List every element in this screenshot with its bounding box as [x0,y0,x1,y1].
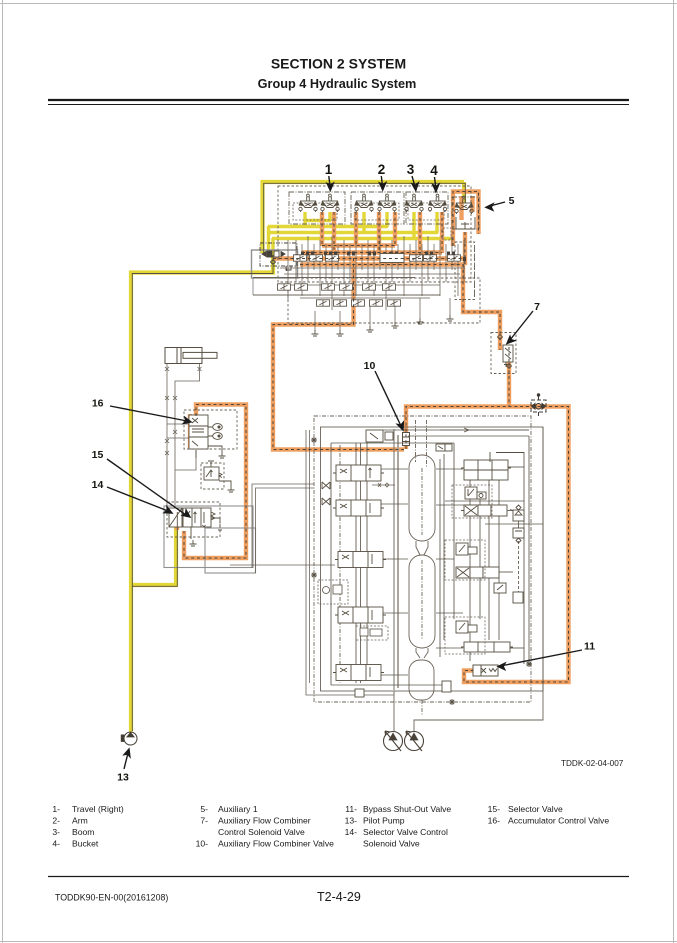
svg-text:Bypass Shut-Out Valve: Bypass Shut-Out Valve [363,804,451,814]
svg-text:Control Solenoid Valve: Control Solenoid Valve [218,827,305,837]
svg-text:10: 10 [364,360,376,372]
svg-text:Solenoid Valve: Solenoid Valve [363,839,420,849]
svg-text:3-: 3- [52,827,60,837]
svg-text:Selector Valve: Selector Valve [508,804,563,814]
svg-text:14-: 14- [345,827,358,837]
svg-text:T2-4-29: T2-4-29 [317,890,361,904]
svg-text:Travel (Right): Travel (Right) [72,804,124,814]
svg-text:Auxiliary 1: Auxiliary 1 [218,804,258,814]
svg-text:Group 4 Hydraulic System: Group 4 Hydraulic System [258,77,417,91]
svg-text:SECTION 2 SYSTEM: SECTION 2 SYSTEM [271,56,406,72]
svg-text:7: 7 [534,301,540,313]
svg-text:15-: 15- [488,804,501,814]
svg-text:15: 15 [92,449,104,461]
svg-text:3: 3 [407,162,415,177]
svg-text:Accumulator Control Valve: Accumulator Control Valve [508,816,609,826]
svg-text:10-: 10- [196,839,209,849]
svg-text:7-: 7- [200,816,208,826]
svg-text:5: 5 [509,195,515,207]
svg-text:Selector Valve Control: Selector Valve Control [363,827,448,837]
svg-text:4-: 4- [52,839,60,849]
svg-text:16: 16 [92,398,104,410]
svg-text:5-: 5- [200,804,208,814]
svg-text:Arm: Arm [72,816,88,826]
svg-text:Boom: Boom [72,827,94,837]
svg-text:11-: 11- [345,804,357,814]
svg-text:TDDK-02-04-007: TDDK-02-04-007 [561,759,624,768]
svg-text:11: 11 [584,641,595,653]
svg-text:16-: 16- [488,816,501,826]
svg-text:4: 4 [430,163,438,178]
svg-text:TODDK90-EN-00(20161208): TODDK90-EN-00(20161208) [55,893,168,903]
svg-text:Pilot Pump: Pilot Pump [363,816,405,826]
svg-text:1-: 1- [52,804,60,814]
svg-text:Auxiliary Flow Combiner: Auxiliary Flow Combiner [218,816,311,826]
svg-text:14: 14 [92,479,104,491]
svg-text:Bucket: Bucket [72,839,99,849]
svg-text:1: 1 [325,162,333,177]
svg-text:Auxiliary Flow Combiner Valve: Auxiliary Flow Combiner Valve [218,839,334,849]
svg-text:13: 13 [117,772,129,784]
svg-text:2: 2 [378,162,386,177]
svg-text:13-: 13- [345,816,358,826]
svg-text:2-: 2- [52,816,60,826]
